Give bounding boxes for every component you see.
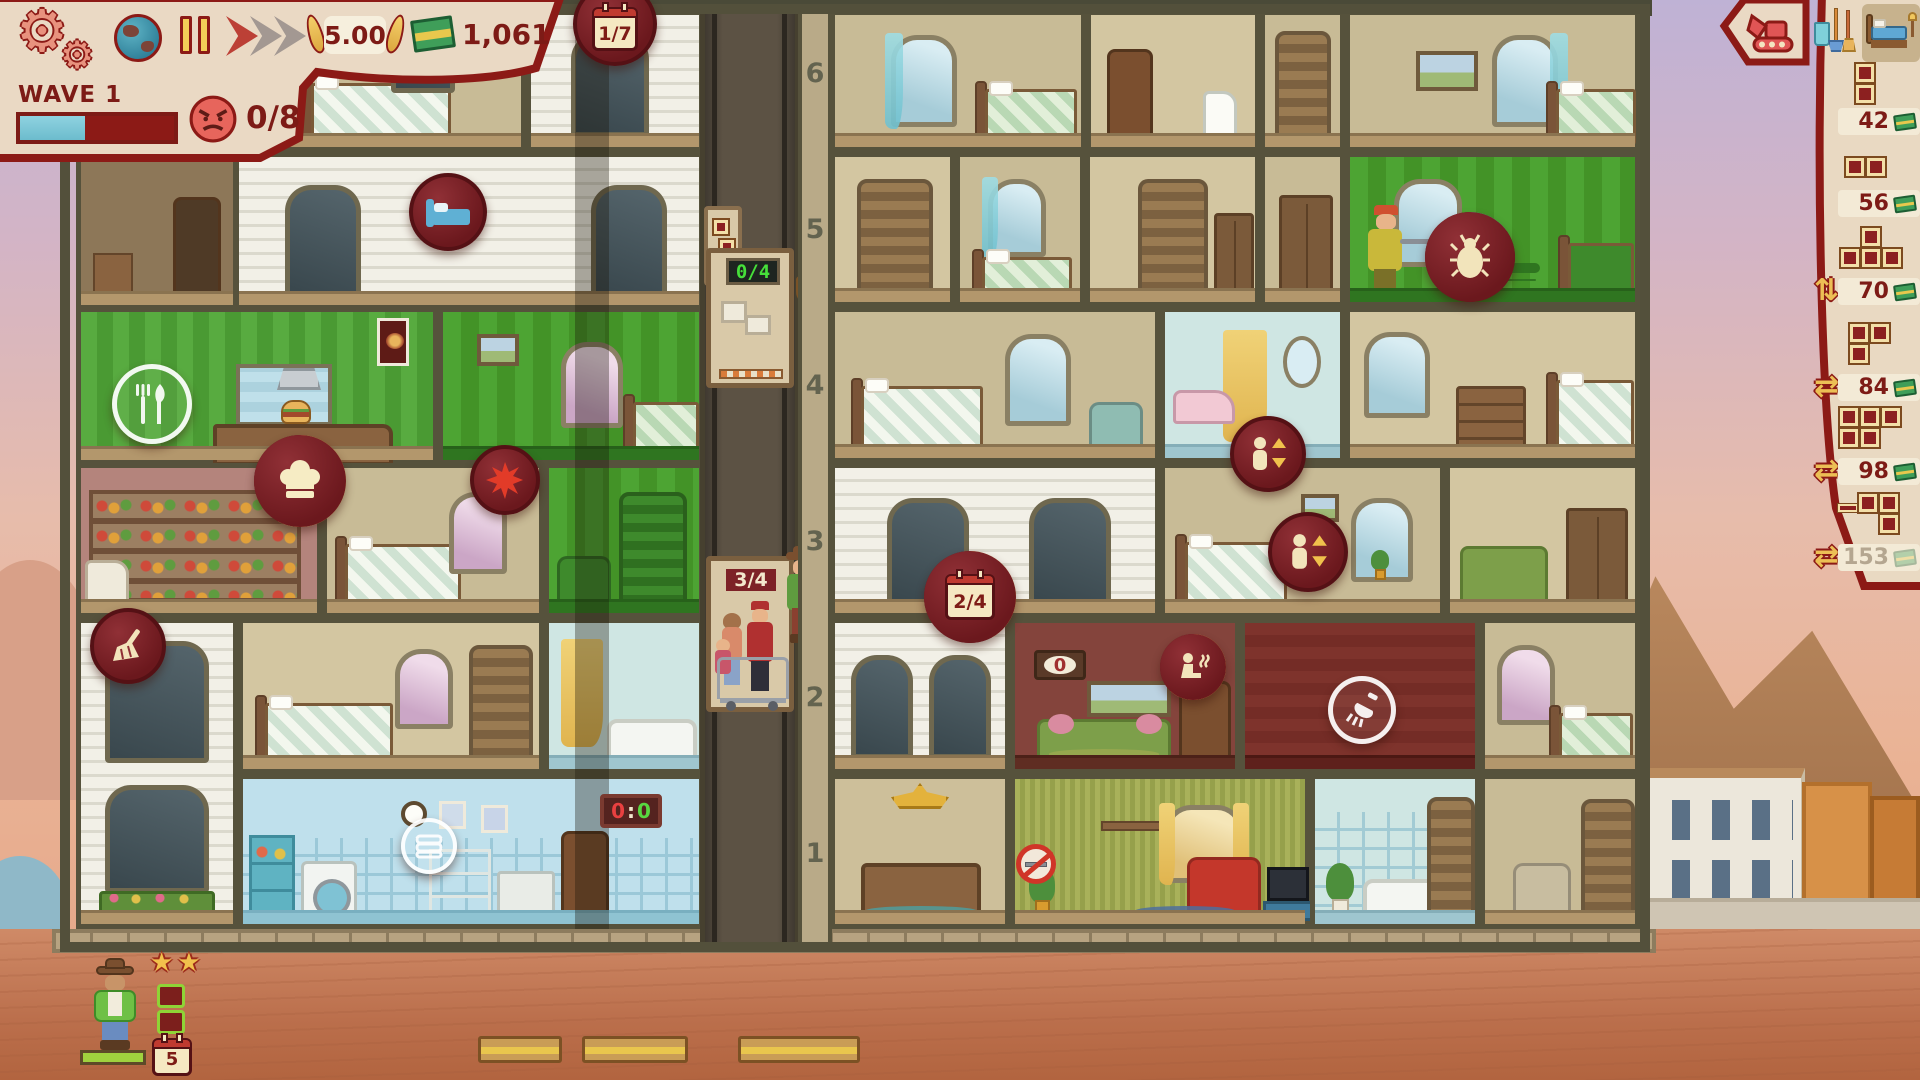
- money-icon: [1893, 462, 1917, 481]
- shower-icon: [1344, 692, 1380, 728]
- tab-bedrooms-selected[interactable]: [1862, 4, 1920, 62]
- elevator-occupancy-sign: 3/4: [723, 566, 779, 594]
- room-piece-block: [1840, 408, 1858, 426]
- cash-stack-icon: [410, 15, 456, 53]
- window: [851, 655, 913, 759]
- crate: [93, 253, 133, 301]
- bed: [255, 695, 393, 761]
- room-bedroom[interactable]: [955, 152, 1085, 307]
- shoe-shelf: [249, 835, 295, 921]
- spiral-staircase: [1427, 797, 1475, 921]
- floor-label-6: 6: [798, 58, 832, 89]
- wardrobe: [1214, 213, 1254, 301]
- wardrobe: [1566, 508, 1628, 610]
- room-piece-block: [1867, 158, 1885, 176]
- elevator-mat: [719, 369, 783, 379]
- money-value: 1,061: [462, 18, 551, 51]
- price-value: 84: [1858, 375, 1889, 400]
- guest-star-rating: ★★: [150, 948, 205, 978]
- bed: [623, 394, 699, 452]
- room-piece-block: [1859, 494, 1877, 512]
- mini-room-piece: [714, 220, 728, 234]
- calendar-icon: 1/7: [592, 7, 638, 51]
- settings-gear-small-icon[interactable]: ⚙: [60, 36, 94, 74]
- guest-request-badge[interactable]: [1230, 416, 1306, 492]
- floor-label-1: 1: [798, 838, 832, 869]
- wood-pallet: [738, 1036, 860, 1063]
- room-stair-lounge[interactable]: [1480, 774, 1640, 929]
- elevator-notice: [745, 315, 771, 335]
- bed-tab-legs: [1871, 40, 1907, 48]
- infestation-bug-badge[interactable]: [1425, 212, 1515, 302]
- wood-pallet: [478, 1036, 562, 1063]
- window: [285, 185, 361, 297]
- television: [1267, 867, 1309, 901]
- bed: [851, 378, 983, 450]
- price-row-disabled: 153: [1838, 544, 1920, 571]
- timer-right: 0: [637, 799, 651, 823]
- mop-icon: [1834, 8, 1838, 42]
- bed: [1546, 372, 1634, 452]
- window: [395, 649, 453, 729]
- toilet: [1203, 91, 1237, 145]
- price-value: 70: [1858, 279, 1889, 304]
- room-piece-block: [1850, 345, 1868, 363]
- sauna-person-icon: [1176, 652, 1210, 682]
- cleaning-broom-badge[interactable]: [90, 608, 166, 684]
- room-piece-block: [1880, 515, 1898, 533]
- price-row: 70: [1838, 278, 1920, 305]
- picture-frame: [1087, 681, 1171, 717]
- dresser: [1456, 386, 1526, 452]
- room-piece-block: [1883, 249, 1901, 267]
- spiral-staircase: [1275, 31, 1331, 143]
- door: [1107, 49, 1153, 145]
- calendar-icon: 2/4: [945, 574, 995, 620]
- rotate-updown-icon[interactable]: ⇅: [1814, 276, 1839, 306]
- room-piece-block: [1856, 85, 1874, 103]
- elevator-rail: [712, 10, 717, 950]
- room-bedroom[interactable]: [1345, 10, 1640, 152]
- bed-frame: [1558, 235, 1634, 297]
- bed: [975, 81, 1077, 143]
- floor-number-column: [798, 8, 832, 952]
- lamp-icon: [1908, 12, 1917, 21]
- flower-box: [99, 891, 215, 917]
- elevator-occupancy-led: 0/4: [726, 258, 780, 285]
- room-infested-bedroom[interactable]: [438, 307, 704, 465]
- sofa: [1460, 546, 1548, 608]
- price-row: 56: [1838, 190, 1920, 217]
- room-piece-block: [1882, 408, 1900, 426]
- town-window-row: [1632, 800, 1793, 840]
- price-row: 42: [1838, 108, 1920, 135]
- elevator-notice: [721, 301, 747, 323]
- wanted-room-shape-block: [157, 984, 185, 1008]
- week-day-value: 1/7: [598, 23, 631, 45]
- burger: [281, 400, 311, 424]
- floor-label-3: 3: [798, 526, 832, 557]
- mirror: [1283, 336, 1321, 388]
- wave-label: WAVE 1: [18, 82, 122, 108]
- elevator-car-empty[interactable]: 0/4: [706, 248, 794, 388]
- elevator-occupancy-value: 3/4: [734, 569, 767, 591]
- room-piece-block: [1871, 324, 1889, 342]
- room-stairwell[interactable]: [1260, 10, 1345, 152]
- room-lobby[interactable]: [830, 774, 1010, 929]
- anger-counter: 0/8: [246, 100, 300, 136]
- spiral-staircase: [469, 645, 533, 767]
- fork-knife-icon: [132, 382, 172, 426]
- floor-label-2: 2: [798, 682, 832, 713]
- guest-patience-bar: [80, 1050, 146, 1065]
- globe-language-icon[interactable]: [114, 14, 162, 62]
- price-value: 42: [1858, 109, 1889, 134]
- room-piece-block: [1861, 429, 1879, 447]
- kitchen-chef-badge[interactable]: [254, 435, 346, 527]
- room-sitting[interactable]: [1445, 463, 1640, 618]
- room-lounge[interactable]: [1010, 774, 1310, 929]
- rating-pill: 5.00: [324, 16, 386, 54]
- window: [1005, 334, 1071, 426]
- tv-cabinet: [1263, 901, 1313, 921]
- elevator-occupancy-value: 0/4: [736, 261, 770, 283]
- shower-construction-icon: [1328, 676, 1396, 744]
- price-row: 98: [1838, 458, 1920, 485]
- room-bedroom[interactable]: [1480, 618, 1640, 774]
- broom-icon-small: [1846, 10, 1850, 40]
- bed-tab-blanket: [1871, 26, 1907, 40]
- bed-icon: [426, 195, 470, 229]
- laundry-icon-circle: [401, 818, 457, 874]
- window: [1364, 332, 1430, 418]
- room-piece-block: [1862, 228, 1880, 246]
- lamp-stand-icon: [1911, 21, 1914, 37]
- room-utility[interactable]: [76, 152, 238, 310]
- room-stairwell[interactable]: [1085, 152, 1260, 307]
- room-bedroom[interactable]: [830, 10, 1086, 152]
- luggage-cart: [717, 657, 789, 699]
- spiral-staircase: [857, 179, 933, 299]
- picture-frame: [1416, 51, 1478, 91]
- shop-item-4[interactable]: ⇄ 84: [1838, 324, 1920, 408]
- room-piece-block: [1840, 429, 1858, 447]
- rug: [865, 906, 977, 918]
- rug: [1049, 749, 1159, 761]
- game-screen: 0/4 3/4: [0, 0, 1920, 1080]
- no-smoking-sign: [1016, 844, 1056, 884]
- elevator-rail: [782, 10, 787, 950]
- floor-label-4: 4: [798, 370, 832, 401]
- money-icon: [1893, 548, 1917, 567]
- wardrobe: [1279, 195, 1333, 301]
- money-icon: [1893, 112, 1917, 131]
- red-armchair: [1187, 857, 1261, 921]
- person-updown-icon: [1287, 533, 1329, 571]
- construction-day-progress-badge[interactable]: 2/4: [924, 551, 1016, 643]
- money-icon: [1893, 378, 1917, 397]
- pause-button-bar[interactable]: [198, 16, 210, 54]
- angry-face-icon: [188, 94, 238, 144]
- room-under-construction[interactable]: [830, 618, 1010, 774]
- room-piece-block: [1862, 249, 1880, 267]
- plant-white-vase: [1323, 863, 1357, 921]
- bug-splat-icon: [485, 460, 525, 500]
- room-piece-block: [1850, 324, 1868, 342]
- room-closet[interactable]: [1260, 152, 1345, 307]
- guest-patience-fill: [83, 1053, 143, 1062]
- room-piece-block: [1861, 408, 1879, 426]
- room-bathroom[interactable]: [544, 618, 704, 774]
- bed: [1546, 81, 1636, 145]
- bug-icon: [1449, 234, 1491, 280]
- wanted-room-shape-block: [157, 1010, 185, 1034]
- door: [173, 197, 221, 301]
- broom-head-icon: [1842, 38, 1856, 52]
- armchair: [1089, 402, 1143, 452]
- room-piece-block: [1846, 158, 1864, 176]
- room-piece-block: [1856, 64, 1874, 82]
- bread-case: [85, 560, 129, 608]
- room-infested-stairs[interactable]: [544, 463, 704, 618]
- bathtub: [607, 719, 697, 765]
- mop-head-icon: [1828, 40, 1844, 52]
- chandelier: [891, 783, 949, 809]
- pause-button[interactable]: [180, 16, 192, 54]
- pillow: [1136, 714, 1162, 734]
- construction-bedroom-badge[interactable]: [409, 173, 487, 251]
- chef-hat-icon: [278, 461, 322, 501]
- elevator-car-occupied[interactable]: 3/4: [706, 556, 794, 712]
- bed-tab-pillow: [1873, 19, 1886, 28]
- bed: [1549, 705, 1633, 765]
- demolish-excavator-icon[interactable]: [1744, 8, 1796, 56]
- curtain: [1159, 803, 1175, 885]
- room-stairwell[interactable]: [830, 152, 955, 307]
- curtain: [885, 33, 903, 129]
- tab-cleaning[interactable]: [1812, 6, 1858, 60]
- room-piece-block: [1841, 249, 1859, 267]
- price-value: 56: [1858, 191, 1889, 216]
- shop-item-6[interactable]: ⇄ 153: [1838, 494, 1920, 578]
- guest-nights-value: 5: [166, 1049, 179, 1070]
- rotate-swap-icon[interactable]: ⇄: [1814, 542, 1839, 572]
- rotate-swap-icon[interactable]: ⇄: [1814, 456, 1839, 486]
- person-updown-icon: [1248, 436, 1288, 472]
- room-toilet[interactable]: [1086, 10, 1260, 152]
- sink: [1173, 390, 1235, 424]
- floor-label-5: 5: [798, 214, 832, 245]
- armchair: [1513, 863, 1571, 921]
- guest-request-badge[interactable]: [1268, 512, 1348, 592]
- shop-item-1[interactable]: 42: [1838, 64, 1920, 136]
- spiral-staircase: [1138, 179, 1208, 301]
- shop-item-2[interactable]: 56: [1838, 158, 1920, 224]
- hotel-rating-value: 5.00: [324, 21, 386, 50]
- room-bedroom[interactable]: [1345, 307, 1640, 463]
- money-icon: [1893, 194, 1917, 213]
- folding-table: [497, 871, 555, 921]
- rug: [1135, 906, 1235, 918]
- restaurant-icon-circle: [112, 364, 192, 444]
- sauna-badge[interactable]: [1160, 634, 1226, 700]
- picture-frame: [477, 334, 519, 366]
- broom-icon: [109, 627, 147, 665]
- sauna-queue-count: 0: [1054, 655, 1067, 676]
- burger-poster: [377, 318, 409, 366]
- sauna-queue-sign: 0: [1034, 650, 1086, 680]
- bed: [335, 536, 461, 606]
- rotate-swap-icon[interactable]: ⇄: [1814, 372, 1839, 402]
- wave-progress-bar: [16, 112, 178, 144]
- laundry-timer-sign: 0 : 0: [600, 794, 662, 828]
- poster: [481, 805, 508, 833]
- wave-progress-fill: [20, 116, 85, 140]
- washing-machine: [301, 861, 357, 921]
- room-bedroom-large[interactable]: [830, 307, 1160, 463]
- building-foundation: [52, 929, 1656, 953]
- spiral-staircase: [619, 492, 687, 608]
- laundry-pile-icon: [414, 833, 444, 859]
- window: [1497, 645, 1555, 725]
- sauna-bench: [1037, 719, 1171, 765]
- bug-splat-badge[interactable]: [470, 445, 540, 515]
- pillow: [1048, 714, 1074, 734]
- price-value: 98: [1858, 459, 1889, 484]
- money-icon: [1893, 282, 1917, 301]
- shop-item-5[interactable]: ⇄ 98: [1838, 408, 1920, 492]
- day-progress-value: 2/4: [953, 591, 986, 613]
- timer-sep: :: [627, 799, 635, 823]
- price-value: 153: [1843, 545, 1889, 570]
- bed: [972, 249, 1072, 301]
- timer-left: 0: [611, 799, 625, 823]
- curtain: [982, 177, 998, 259]
- price-row: 84: [1838, 374, 1920, 401]
- spiral-staircase: [1581, 799, 1635, 921]
- wood-pallet: [582, 1036, 688, 1063]
- trash-can-icon: [1814, 22, 1830, 46]
- window: [929, 655, 991, 759]
- room-piece-block: [1880, 494, 1898, 512]
- kitchen-hood: [277, 368, 321, 390]
- window-plant: [1369, 550, 1391, 580]
- room-bathroom-blue[interactable]: [1310, 774, 1480, 929]
- room-bedroom[interactable]: [238, 618, 544, 774]
- shop-item-3[interactable]: ⇅ 70: [1838, 228, 1920, 312]
- window: [1029, 498, 1111, 606]
- window: [105, 785, 209, 893]
- room-piece-ledge: [1838, 504, 1858, 512]
- guest-nights-calendar: 5: [152, 1038, 192, 1076]
